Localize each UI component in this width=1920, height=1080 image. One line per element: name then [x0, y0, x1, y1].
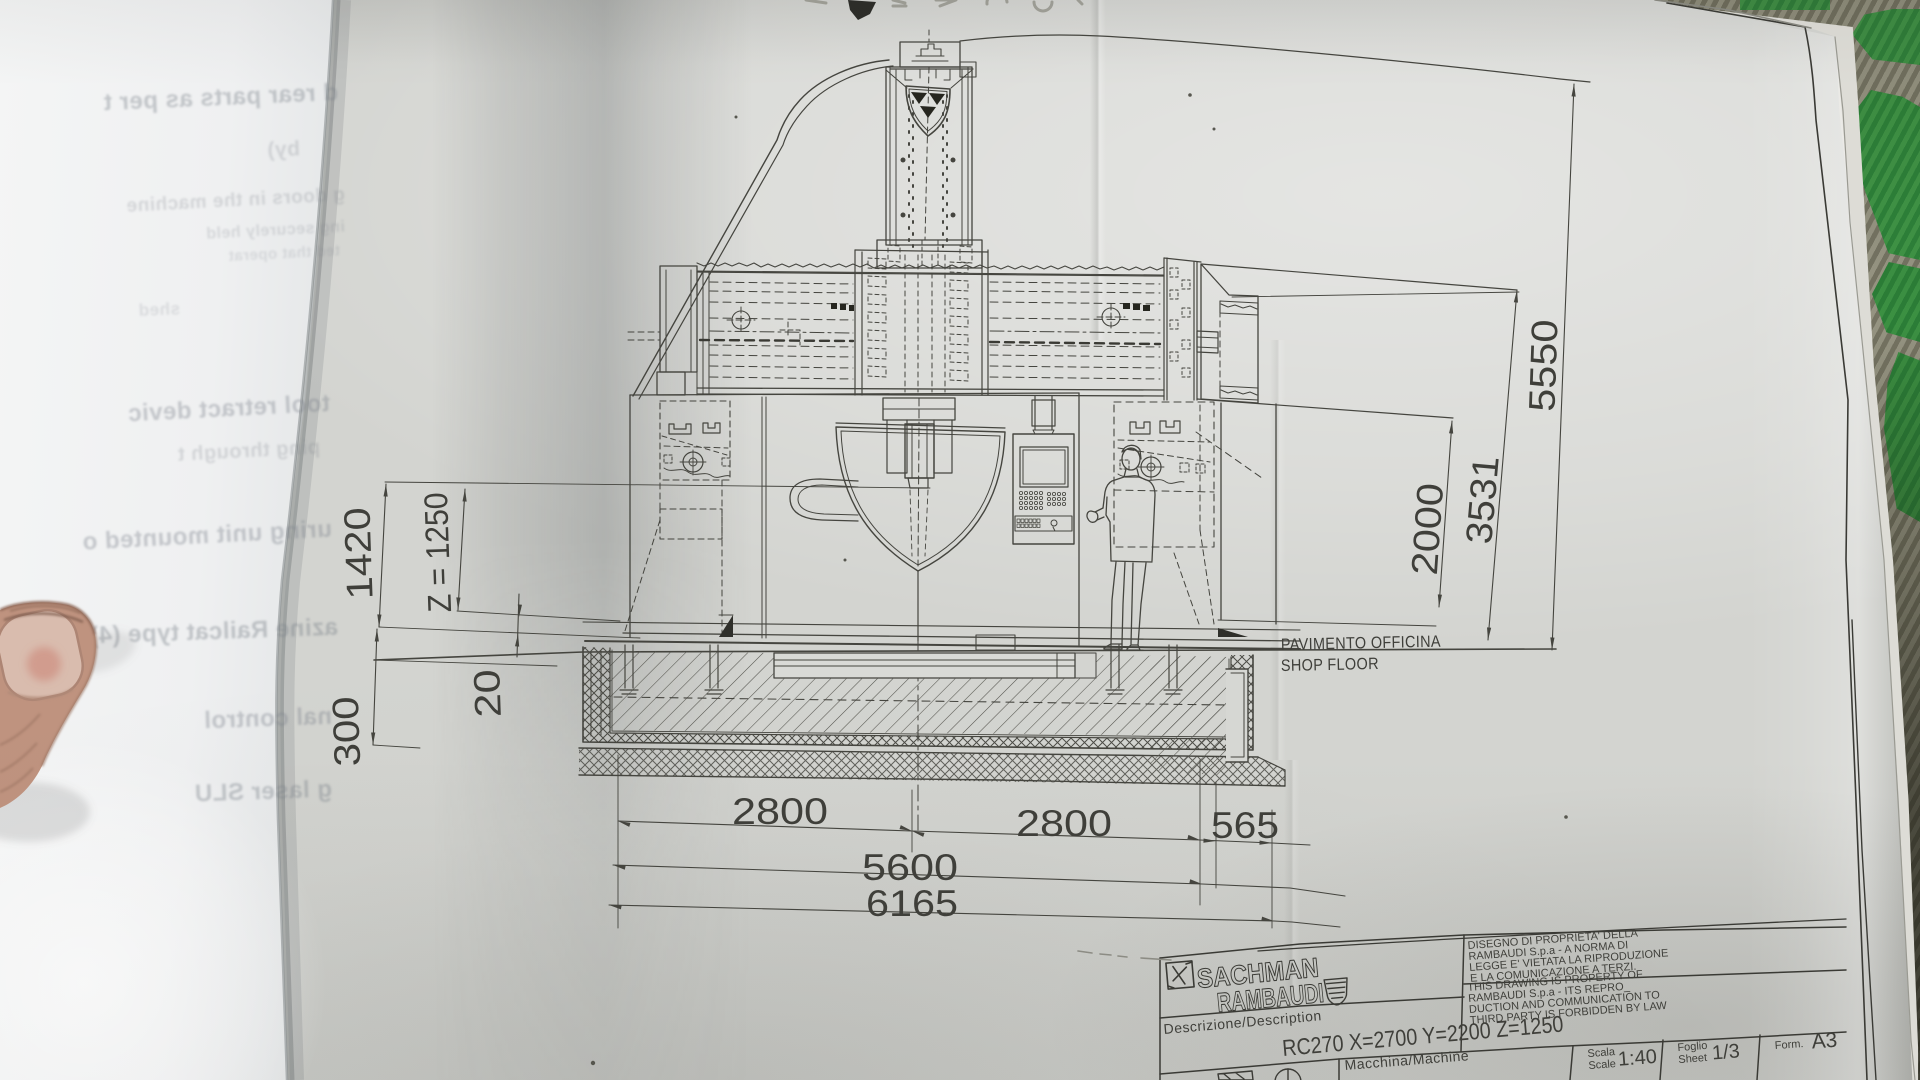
svg-text:Form.: Form.	[1774, 1038, 1804, 1052]
svg-text:565: 565	[1211, 805, 1279, 846]
svg-text:Scale: Scale	[1588, 1058, 1616, 1072]
svg-text:1:40: 1:40	[1617, 1046, 1658, 1071]
svg-text:SHOP FLOOR: SHOP FLOOR	[1281, 655, 1379, 675]
svg-text:2800: 2800	[732, 791, 828, 832]
svg-text:PAVIMENTO OFFICINA: PAVIMENTO OFFICINA	[1281, 633, 1441, 654]
svg-text:20: 20	[466, 669, 509, 718]
svg-text:A3: A3	[1811, 1029, 1838, 1054]
svg-text:2800: 2800	[1016, 803, 1112, 844]
svg-text:1/3: 1/3	[1711, 1040, 1740, 1064]
svg-text:Z = 1250: Z = 1250	[417, 492, 458, 613]
svg-text:3531: 3531	[1458, 454, 1507, 545]
svg-text:2000: 2000	[1404, 482, 1451, 577]
svg-text:5600: 5600	[862, 847, 958, 888]
svg-text:5550: 5550	[1521, 319, 1565, 412]
svg-text:6165: 6165	[866, 883, 958, 924]
svg-text:Sheet: Sheet	[1678, 1052, 1708, 1066]
